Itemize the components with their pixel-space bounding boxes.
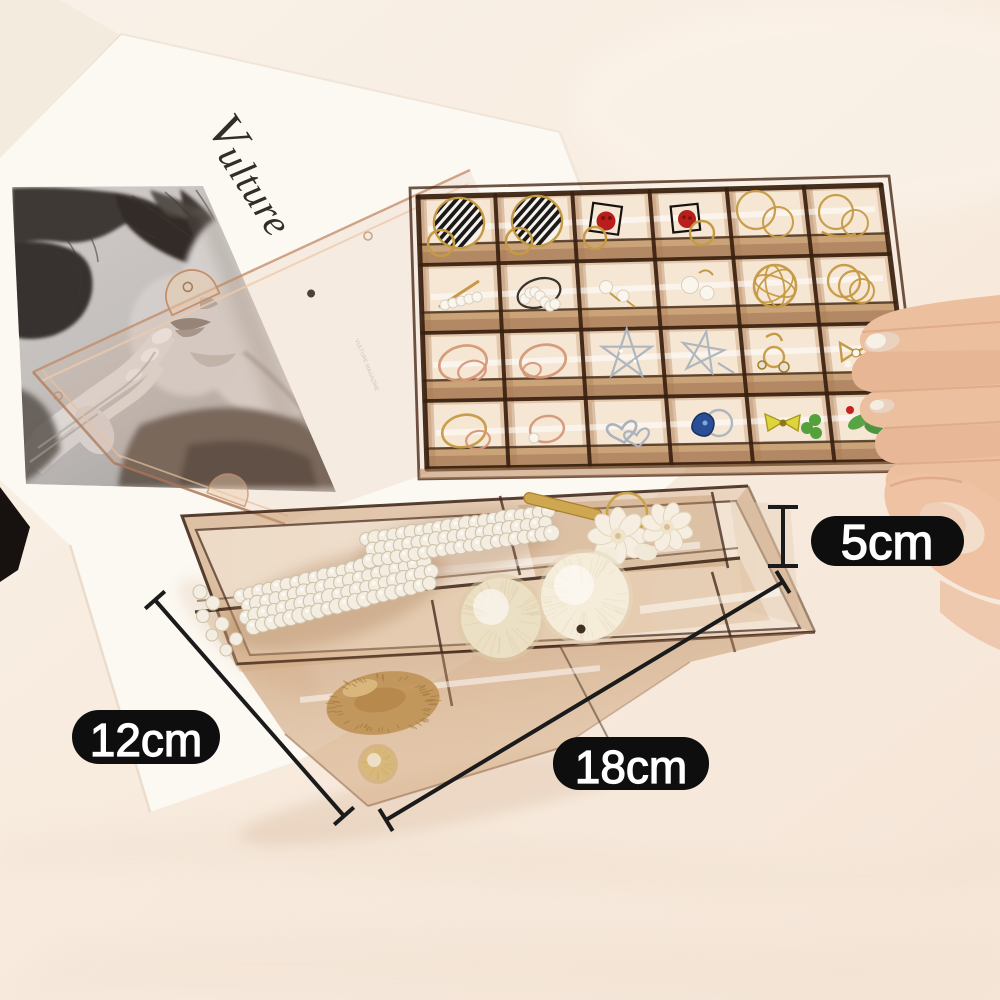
- svg-text:12cm: 12cm: [90, 714, 202, 766]
- svg-text:18cm: 18cm: [575, 741, 687, 793]
- svg-text:5cm: 5cm: [841, 516, 934, 570]
